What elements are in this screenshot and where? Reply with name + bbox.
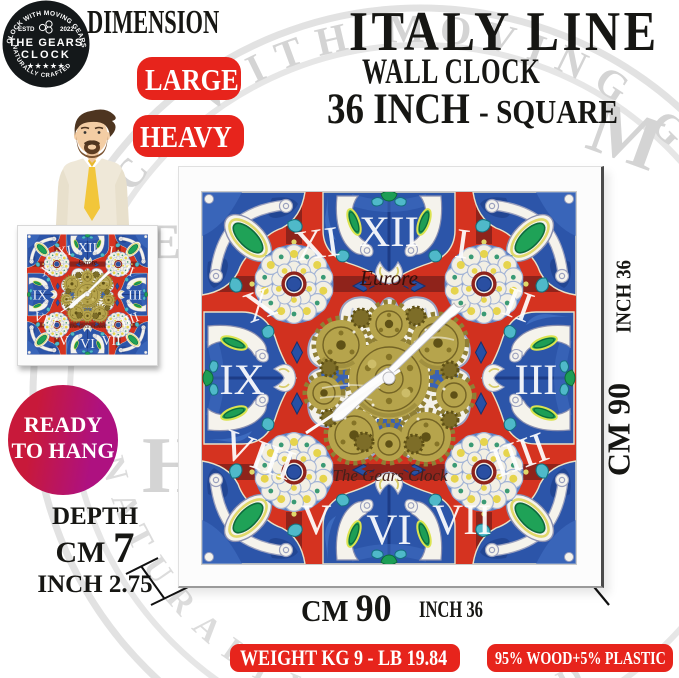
svg-text:2022: 2022 <box>60 26 74 33</box>
svg-text:THE GEARS: THE GEARS <box>9 37 84 49</box>
svg-text:★★★★★: ★★★★★ <box>27 62 65 71</box>
svg-text:CLOCK: CLOCK <box>21 49 71 61</box>
svg-text:ESTD: ESTD <box>18 26 35 33</box>
